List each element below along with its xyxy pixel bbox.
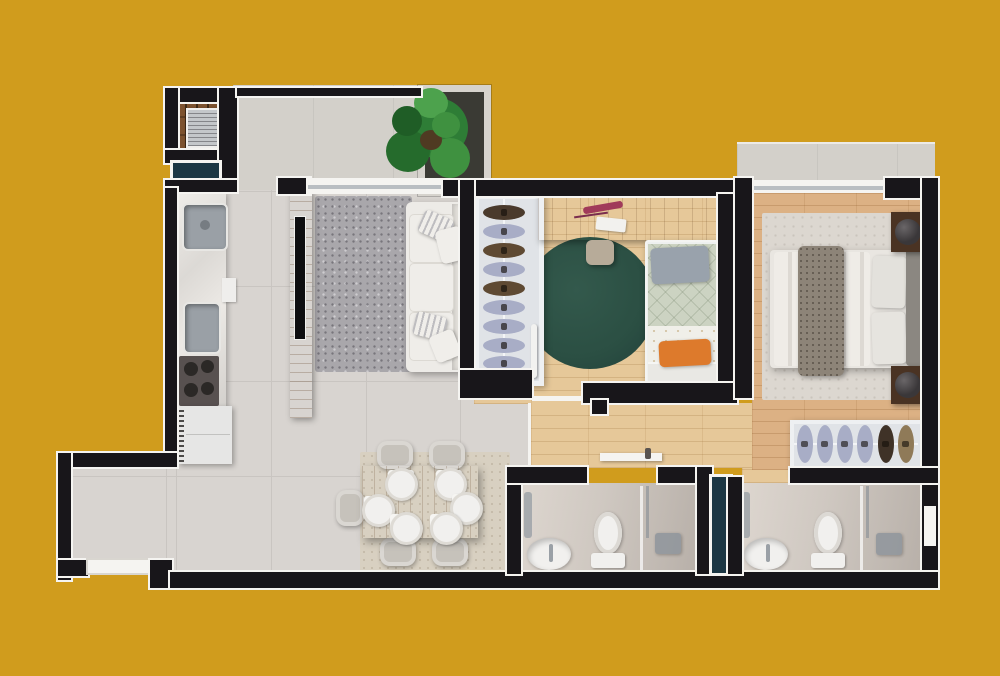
dining-chair	[377, 441, 413, 469]
master-headboard	[906, 246, 922, 366]
barbecue-grill	[186, 108, 219, 148]
door-handle-icon	[645, 448, 651, 459]
shower-arm	[866, 486, 869, 538]
sofa-cushion	[409, 263, 454, 312]
burner	[201, 360, 214, 373]
plant	[372, 86, 476, 182]
sofa	[406, 202, 468, 372]
shower-head	[876, 533, 902, 555]
towel-rail	[524, 492, 532, 538]
wall-bathroom-left	[507, 467, 521, 574]
burner	[184, 362, 198, 376]
hanging-clothes	[483, 356, 525, 371]
shower-glass	[640, 486, 643, 570]
toilet-tank	[811, 553, 845, 568]
refrigerator	[178, 406, 232, 464]
desk-stool	[586, 240, 614, 265]
sink-faucet	[549, 544, 553, 562]
wall-bottom	[170, 572, 938, 588]
wall-door-stop	[592, 400, 607, 414]
hanging-clothes	[483, 224, 525, 239]
dining-chair	[429, 441, 465, 469]
wall-grill-right	[219, 88, 237, 192]
living-room-rug	[315, 196, 412, 372]
wall-terrace-parapet	[237, 88, 421, 96]
bed-pillow-gray	[650, 246, 710, 285]
nightstand-lamp	[895, 219, 921, 245]
kitchen-single-sink	[183, 302, 221, 354]
hanging-clothes	[898, 425, 914, 463]
hanging-clothes	[837, 425, 853, 463]
wall-master-left	[735, 178, 752, 398]
desk	[538, 192, 737, 240]
bedroom-door-threshold	[532, 396, 583, 401]
master-pillow	[871, 311, 907, 364]
wall-kitchen-left	[165, 188, 177, 458]
master-window	[752, 180, 885, 193]
tv-screen	[294, 216, 306, 340]
entry-door	[86, 558, 151, 575]
master-pillow	[871, 255, 907, 308]
wall-entry-top	[62, 453, 177, 467]
wall-bedroom-top	[443, 180, 740, 196]
hanging-clothes	[797, 425, 813, 463]
sink-faucet	[766, 544, 770, 562]
burner	[184, 383, 198, 397]
hanging-clothes	[483, 338, 525, 353]
plate	[390, 512, 423, 545]
wall-entry-bottom-left	[58, 560, 88, 576]
toilet-tank	[591, 553, 625, 568]
kitchen-cooktop	[179, 356, 219, 406]
entry-floor	[71, 467, 176, 572]
hanging-clothes	[483, 243, 525, 258]
wall-bathroom-top-left	[507, 467, 587, 483]
single-bed	[645, 240, 724, 392]
kitchen-cabinet	[222, 278, 236, 302]
service-window	[173, 163, 219, 180]
plant-leaf	[392, 106, 422, 136]
towel-rail	[742, 492, 750, 538]
plate	[430, 512, 463, 545]
plant-leaf	[432, 112, 460, 138]
hanging-clothes	[878, 425, 894, 463]
master-bed	[770, 250, 910, 368]
wall-entry-step	[150, 560, 172, 588]
ensuite-window	[924, 506, 936, 546]
hanging-clothes	[483, 262, 525, 277]
living-room-window	[306, 178, 445, 194]
shower-head	[655, 533, 681, 554]
shower-arm	[646, 486, 649, 538]
burner	[201, 382, 214, 395]
desk-notebook	[595, 216, 626, 232]
hanging-clothes	[483, 205, 525, 220]
wall-ensuite-left	[728, 477, 742, 574]
bed-pillow-orange	[658, 339, 711, 368]
kitchen-sink-faucet	[200, 220, 210, 230]
wall-closet-bottom	[460, 370, 532, 398]
hanging-clothes	[483, 319, 525, 334]
wall-bathroom-right	[697, 467, 712, 574]
wall-living-bedroom-divider	[460, 180, 474, 398]
window-glass	[754, 186, 883, 190]
wall-ensuite-top	[790, 468, 938, 483]
hanging-clothes	[857, 425, 873, 463]
refrigerator-coil	[178, 408, 184, 462]
master-balcony-floor	[737, 142, 935, 182]
plate	[385, 468, 418, 501]
shower-glass	[860, 486, 863, 570]
nightstand-lamp	[895, 372, 921, 398]
bathroom-door-leaf	[600, 453, 662, 461]
refrigerator-door-line	[186, 434, 230, 435]
hanging-clothes	[483, 281, 525, 296]
dining-chair	[336, 490, 364, 526]
hanging-clothes	[483, 300, 525, 315]
floor-plan	[0, 0, 1000, 676]
master-blanket	[798, 246, 844, 376]
window-glass	[308, 185, 443, 189]
hanging-clothes	[817, 425, 833, 463]
toilet	[594, 512, 622, 554]
ensuite-threshold	[742, 468, 794, 483]
toilet	[814, 512, 842, 554]
